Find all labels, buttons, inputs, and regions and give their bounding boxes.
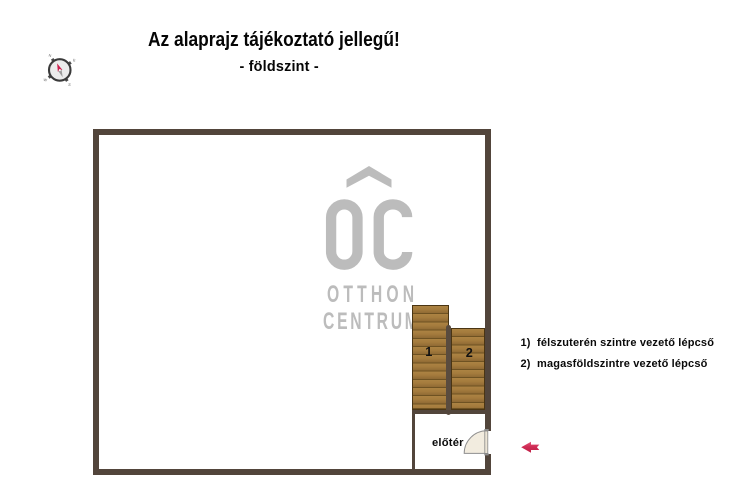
svg-text:W: W: [43, 78, 48, 83]
svg-text:E: E: [73, 58, 77, 62]
svg-text:N: N: [48, 54, 52, 58]
svg-text:S: S: [68, 83, 72, 87]
